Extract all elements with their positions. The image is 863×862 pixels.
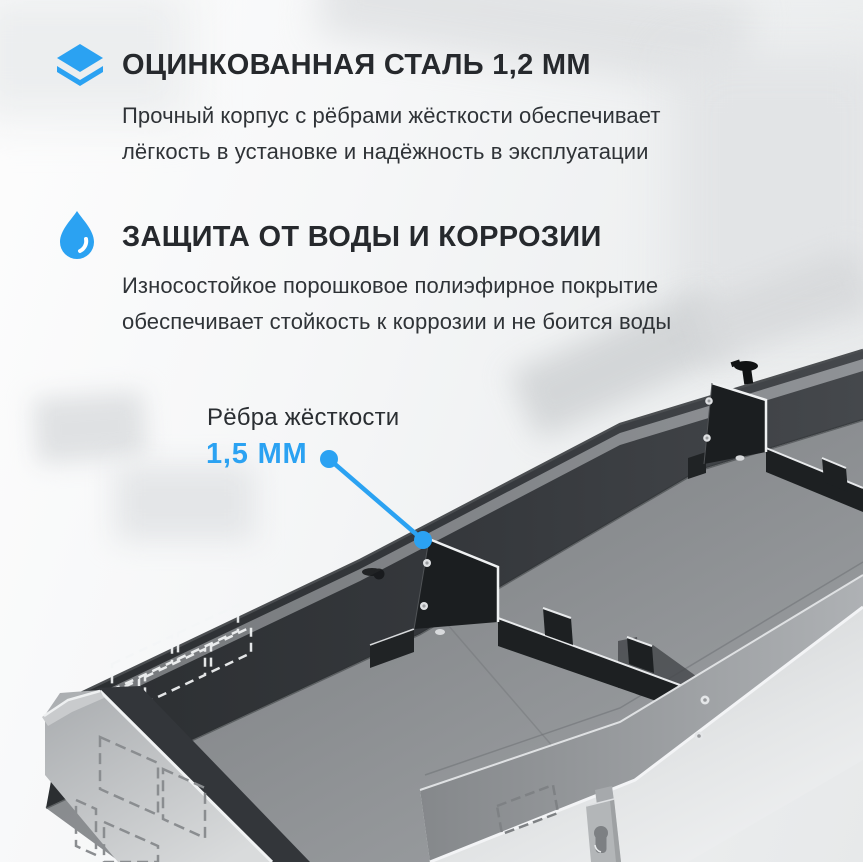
mounting-screw-icon bbox=[731, 360, 758, 385]
layers-icon bbox=[54, 42, 106, 88]
feature-description-line: Прочный корпус с рёбрами жёсткости обесп… bbox=[122, 103, 661, 129]
rivet bbox=[435, 629, 445, 635]
infographic-page: ОЦИНКОВАННАЯ СТАЛЬ 1,2 ММ Прочный корпус… bbox=[0, 0, 863, 862]
product-photo bbox=[0, 0, 863, 862]
feature-description-line: обеспечивает стойкость к коррозии и не б… bbox=[122, 309, 671, 335]
feature-description-line: лёгкость в установке и надёжность в эксп… bbox=[122, 139, 649, 165]
feature-title: ОЦИНКОВАННАЯ СТАЛЬ 1,2 ММ bbox=[122, 49, 591, 82]
water-drop-icon bbox=[57, 210, 97, 262]
feature-description-line: Износостойкое порошковое полиэфирное пок… bbox=[122, 273, 658, 299]
callout-label: Рёбра жёсткости bbox=[207, 404, 399, 432]
rivet bbox=[736, 455, 745, 461]
feature-title: ЗАЩИТА ОТ ВОДЫ И КОРРОЗИИ bbox=[122, 221, 602, 254]
callout-value: 1,5 ММ bbox=[206, 438, 308, 471]
